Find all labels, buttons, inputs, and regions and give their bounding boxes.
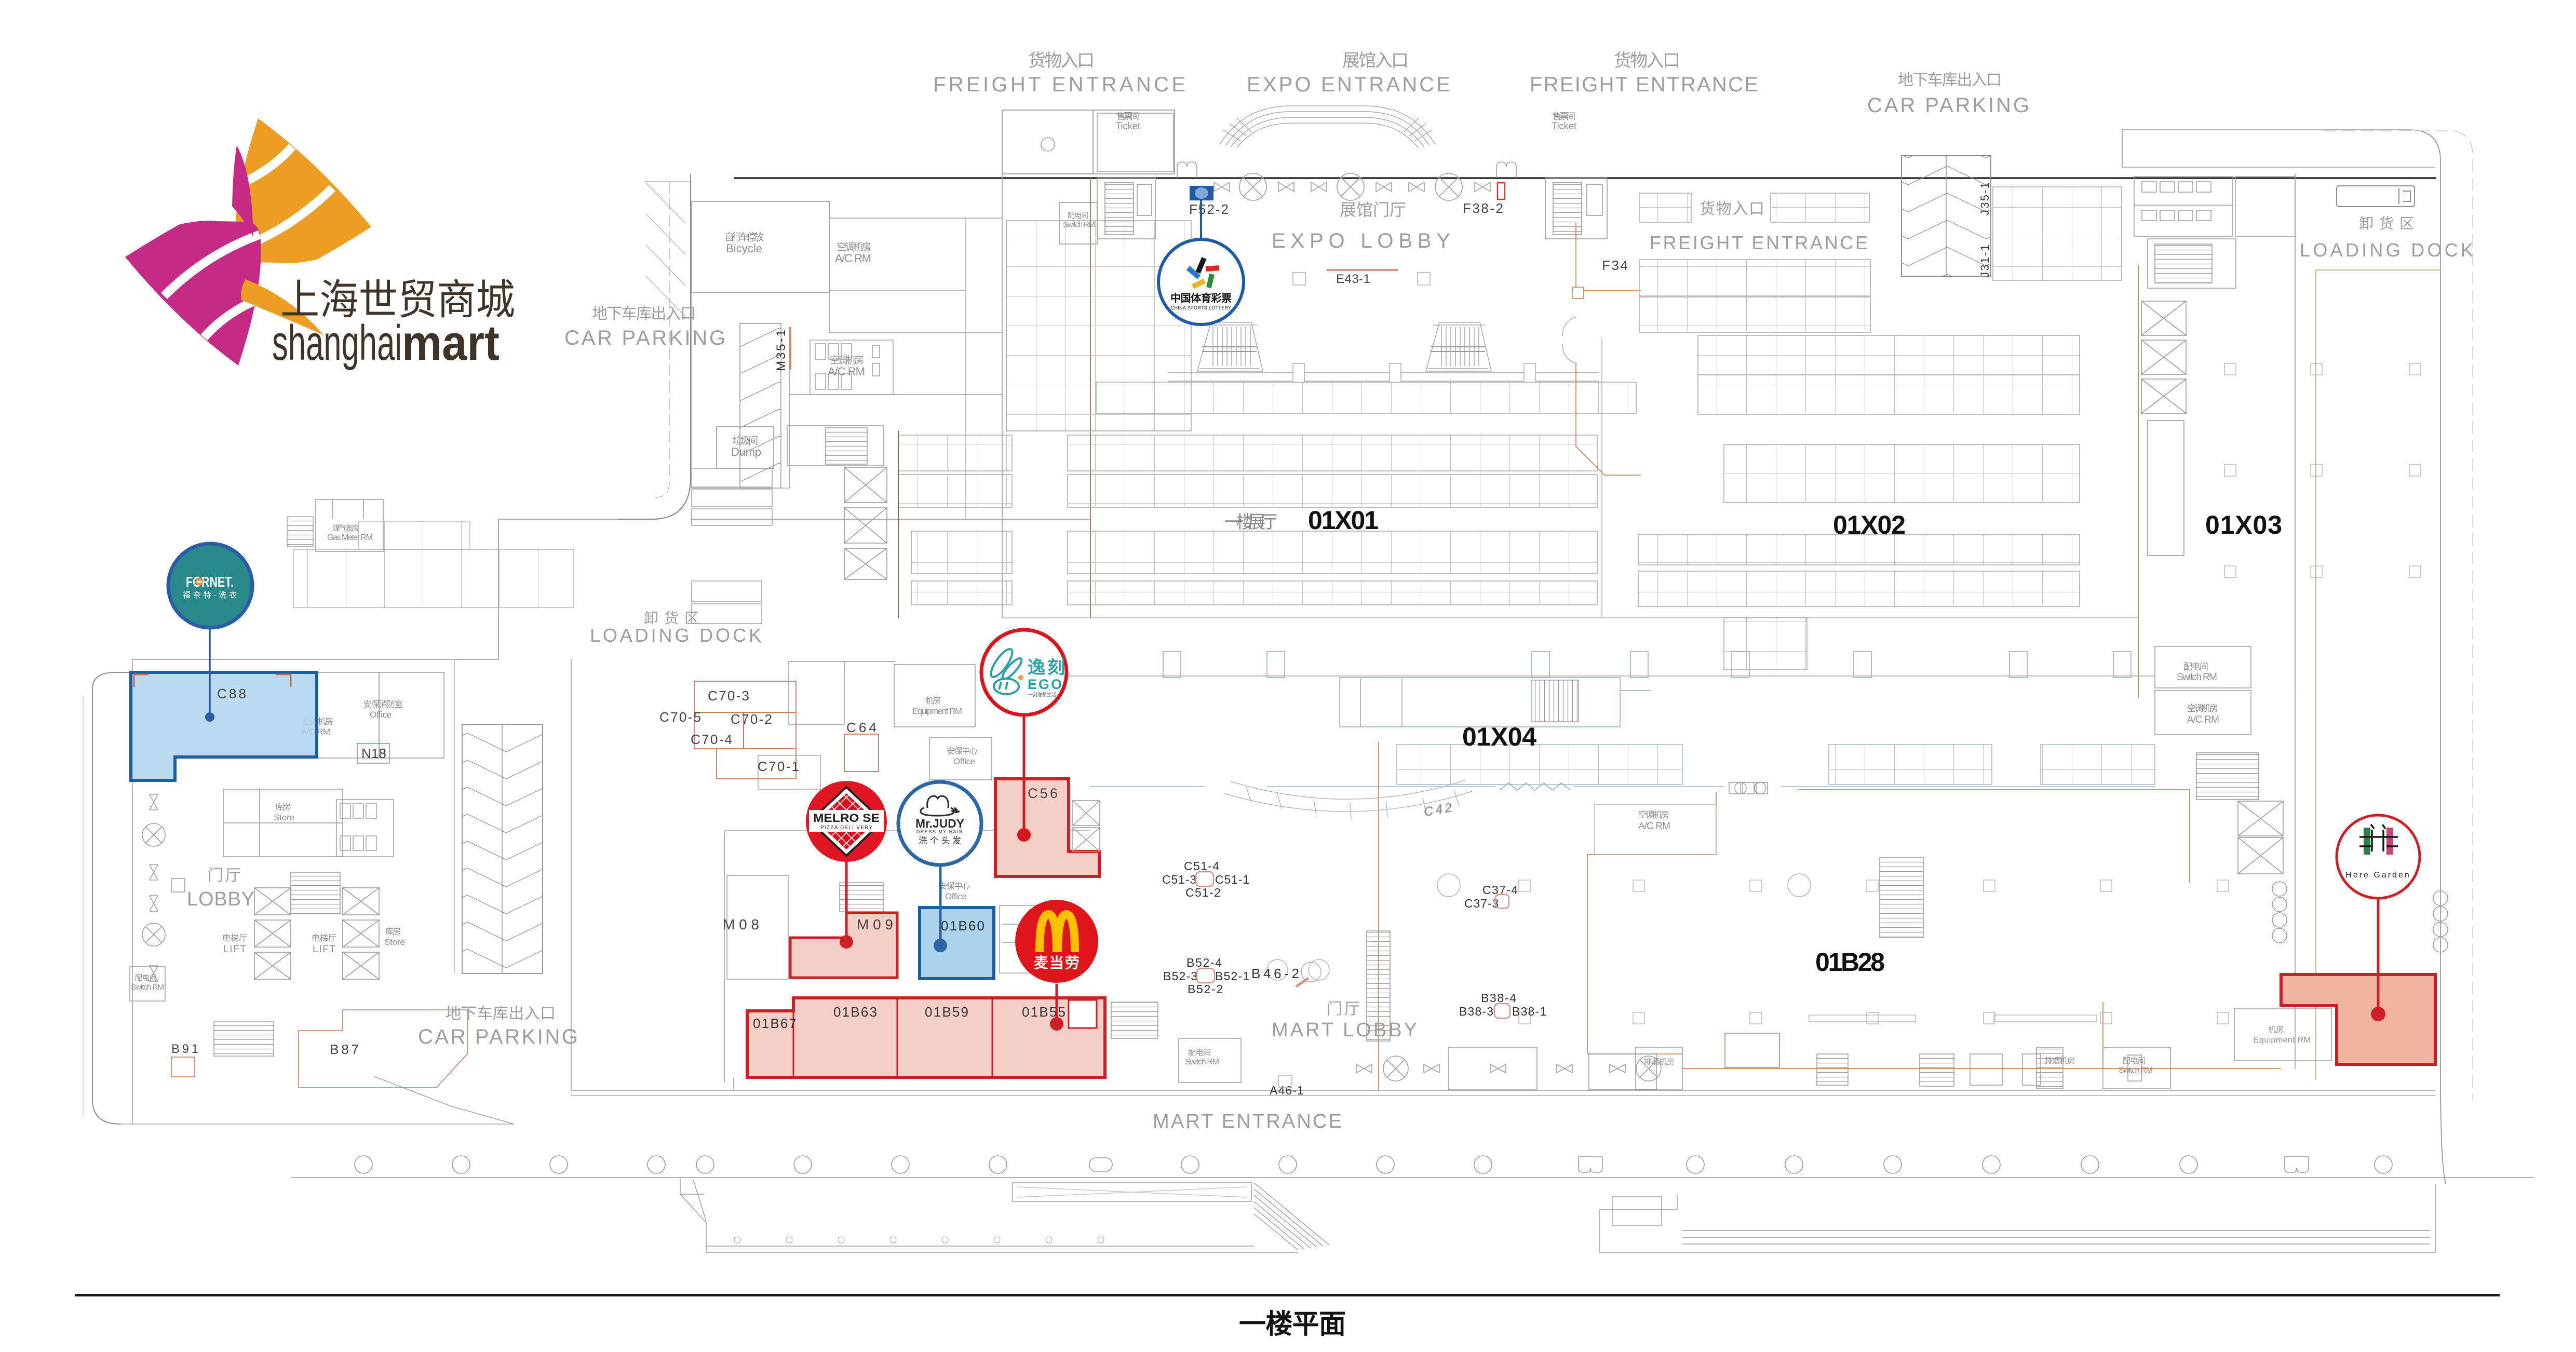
svg-text:FREIGHT ENTRANCE: FREIGHT ENTRANCE (1530, 73, 1758, 96)
svg-text:麦当劳: 麦当劳 (1034, 955, 1080, 971)
svg-text:排烟机房: 排烟机房 (2045, 1057, 2075, 1065)
svg-text:C51-1: C51-1 (1215, 873, 1249, 886)
svg-text:J35-1: J35-1 (1978, 182, 1991, 215)
svg-text:A46-1: A46-1 (1270, 1084, 1304, 1097)
svg-text:A/C RM: A/C RM (2187, 714, 2219, 725)
svg-text:地下车库出入口: 地下车库出入口 (592, 305, 696, 322)
svg-text:A/C RM: A/C RM (1638, 821, 1670, 832)
svg-text:01B28: 01B28 (1815, 948, 1885, 977)
svg-text:Equipment RM: Equipment RM (912, 706, 962, 716)
svg-text:电梯厅: 电梯厅 (312, 934, 336, 943)
svg-text:空调机房: 空调机房 (1638, 810, 1669, 820)
svg-text:Switch RM: Switch RM (131, 983, 164, 992)
svg-text:PIZZA DELI VERY: PIZZA DELI VERY (820, 825, 872, 831)
svg-text:N18: N18 (361, 746, 386, 761)
svg-text:01B63: 01B63 (833, 1004, 877, 1020)
svg-text:C70-2: C70-2 (731, 711, 772, 727)
svg-text:一刻逸想生活: 一刻逸想生活 (1028, 692, 1056, 697)
svg-text:MART ENTRANCE: MART ENTRANCE (1153, 1111, 1342, 1132)
svg-text:电梯厅: 电梯厅 (222, 934, 247, 943)
svg-text:配电间: 配电间 (135, 974, 157, 982)
svg-text:EXPO LOBBY: EXPO LOBBY (1272, 229, 1450, 252)
svg-text:M35-1: M35-1 (774, 330, 788, 371)
svg-text:01B59: 01B59 (925, 1004, 968, 1020)
svg-text:LIFT: LIFT (313, 944, 335, 955)
svg-text:货物入口: 货物入口 (1028, 51, 1095, 71)
svg-text:卸货区: 卸货区 (2359, 215, 2414, 232)
svg-text:B87: B87 (330, 1042, 359, 1057)
svg-text:货物入口: 货物入口 (1614, 51, 1680, 71)
svg-text:CAR PARKING: CAR PARKING (418, 1025, 578, 1048)
svg-text:DRESS MY HAIR: DRESS MY HAIR (916, 829, 963, 834)
svg-text:F38-2: F38-2 (1463, 200, 1503, 216)
svg-text:货物入口: 货物入口 (1700, 200, 1764, 218)
svg-text:C88: C88 (217, 686, 246, 701)
svg-text:Switch RM: Switch RM (1185, 1058, 1219, 1066)
svg-text:Switch RM: Switch RM (1063, 220, 1095, 229)
svg-text:垃圾间: 垃圾间 (732, 435, 758, 447)
svg-text:LOBBY: LOBBY (187, 888, 254, 910)
svg-text:Office: Office (953, 756, 975, 766)
svg-text:C51-2: C51-2 (1185, 886, 1221, 899)
svg-text:B38-3: B38-3 (1459, 1005, 1493, 1018)
svg-text:自行车停放: 自行车停放 (724, 232, 764, 243)
svg-text:J31-1: J31-1 (1978, 245, 1991, 278)
svg-text:Switch RM: Switch RM (2177, 672, 2217, 683)
svg-text:01X01: 01X01 (1308, 506, 1379, 535)
svg-text:卸货区: 卸货区 (644, 610, 699, 626)
svg-text:B91: B91 (171, 1042, 198, 1056)
svg-text:B52-2: B52-2 (1188, 982, 1223, 996)
svg-text:LOADING DOCK: LOADING DOCK (2300, 239, 2473, 261)
svg-text:C70-5: C70-5 (659, 709, 701, 725)
svg-text:MELRO SE: MELRO SE (813, 812, 880, 824)
svg-text:C70-1: C70-1 (758, 759, 799, 774)
svg-text:售票间: 售票间 (1553, 112, 1575, 121)
svg-text:Switch RM: Switch RM (2119, 1066, 2153, 1075)
svg-text:空调机房: 空调机房 (2187, 704, 2218, 713)
svg-text:B52-3: B52-3 (1163, 969, 1197, 983)
svg-text:CAR PARKING: CAR PARKING (1867, 94, 2029, 117)
svg-text:配电间: 配电间 (2183, 662, 2208, 672)
svg-text:空调机房: 空调机房 (837, 241, 871, 253)
svg-text:库房: 库房 (385, 927, 401, 937)
svg-text:C51-4: C51-4 (1184, 859, 1219, 873)
svg-text:CHINA SPORTS LOTTERY: CHINA SPORTS LOTTERY (1171, 305, 1232, 310)
svg-text:LOADING DOCK: LOADING DOCK (590, 625, 761, 646)
svg-text:配电间: 配电间 (1188, 1048, 1211, 1057)
svg-text:FREIGHT ENTRANCE: FREIGHT ENTRANCE (1650, 232, 1868, 253)
svg-text:E43-1: E43-1 (1336, 272, 1370, 286)
svg-text:Ticket: Ticket (1115, 121, 1141, 132)
svg-text:安保中心: 安保中心 (939, 882, 970, 891)
svg-text:A/C RM: A/C RM (835, 252, 871, 265)
svg-text:B38-4: B38-4 (1481, 991, 1516, 1005)
svg-text:配电间: 配电间 (1068, 211, 1088, 220)
svg-text:Ticket: Ticket (1552, 121, 1577, 132)
svg-text:01B67: 01B67 (753, 1016, 797, 1031)
svg-text:地下车库出入口: 地下车库出入口 (1898, 72, 2002, 89)
svg-text:Store: Store (274, 813, 294, 822)
svg-text:Bicycle: Bicycle (726, 242, 762, 255)
svg-text:B52-4: B52-4 (1186, 956, 1222, 969)
svg-text:F52-2: F52-2 (1189, 201, 1229, 217)
svg-text:Equipment RM: Equipment RM (2254, 1036, 2311, 1045)
svg-text:B38-1: B38-1 (1512, 1005, 1546, 1018)
svg-text:Office: Office (945, 891, 967, 901)
svg-text:展馆入口: 展馆入口 (1342, 51, 1409, 71)
svg-text:01X03: 01X03 (2205, 510, 2282, 539)
svg-text:EGO: EGO (1028, 677, 1063, 692)
svg-text:C64: C64 (846, 720, 876, 735)
svg-text:M09: M09 (857, 916, 893, 932)
svg-text:C70-3: C70-3 (708, 688, 749, 704)
svg-text:LIFT: LIFT (223, 944, 246, 955)
svg-text:F34: F34 (1602, 258, 1628, 273)
svg-text:安保消防室: 安保消防室 (363, 700, 403, 709)
svg-text:C37-3: C37-3 (1464, 897, 1499, 910)
svg-text:库房: 库房 (275, 803, 291, 812)
svg-text:CAR PARKING: CAR PARKING (564, 327, 725, 349)
svg-text:售票间: 售票间 (1116, 112, 1139, 121)
svg-text:M08: M08 (723, 916, 759, 932)
svg-text:机房: 机房 (925, 696, 941, 706)
svg-text:煤气表房: 煤气表房 (332, 524, 359, 533)
svg-text:B52-1: B52-1 (1215, 969, 1249, 983)
svg-text:配电间: 配电间 (2123, 1057, 2146, 1065)
svg-text:01B55: 01B55 (1022, 1004, 1066, 1020)
svg-text:C56: C56 (1028, 786, 1058, 801)
svg-text:空调机房: 空调机房 (830, 355, 864, 366)
svg-text:一楼平面: 一楼平面 (1239, 1309, 1346, 1340)
svg-text:A/C RM: A/C RM (828, 365, 865, 378)
svg-text:展馆门厅: 展馆门厅 (1340, 200, 1406, 219)
svg-text:MART LOBBY: MART LOBBY (1272, 1019, 1417, 1041)
svg-text:Store: Store (384, 937, 405, 947)
svg-text:FORNET.: FORNET. (186, 574, 234, 590)
svg-text:01X04: 01X04 (1462, 722, 1536, 751)
svg-text:中国体育彩票: 中国体育彩票 (1170, 292, 1232, 304)
svg-text:Gas Meter RM: Gas Meter RM (327, 533, 373, 542)
svg-text:一楼展厅: 一楼展厅 (1224, 512, 1277, 532)
svg-text:Mr.JUDY: Mr.JUDY (915, 817, 964, 830)
svg-text:Dump: Dump (731, 445, 761, 458)
svg-text:Office: Office (370, 710, 392, 720)
svg-text:01B60: 01B60 (941, 918, 984, 934)
svg-text:FREIGHT ENTRANCE: FREIGHT ENTRANCE (933, 73, 1185, 96)
svg-text:排烟机房: 排烟机房 (1643, 1058, 1675, 1066)
svg-text:shanghaimart: shanghaimart (272, 315, 500, 371)
svg-text:C51-3: C51-3 (1162, 873, 1196, 886)
svg-text:01X02: 01X02 (1833, 510, 1906, 539)
svg-text:B46-2: B46-2 (1251, 966, 1299, 981)
svg-text:机房: 机房 (2268, 1025, 2284, 1034)
svg-text:C70-4: C70-4 (691, 732, 732, 747)
svg-text:安保中心: 安保中心 (947, 747, 978, 756)
svg-text:地下车库出入口: 地下车库出入口 (446, 1005, 556, 1022)
svg-text:Here Garden: Here Garden (2345, 871, 2411, 880)
